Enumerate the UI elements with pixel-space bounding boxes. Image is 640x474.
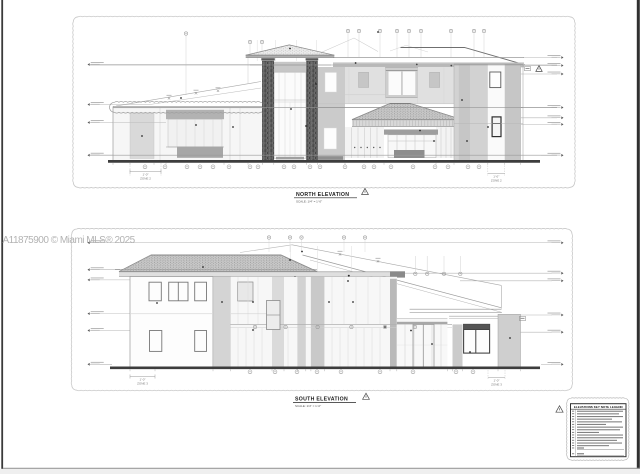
svg-text:ZONE 2: ZONE 2: [140, 176, 151, 180]
svg-text:ZONE 3: ZONE 3: [491, 382, 502, 386]
svg-text:ZONE 3: ZONE 3: [137, 381, 148, 385]
svg-text:ZONE 2: ZONE 2: [491, 178, 502, 182]
svg-text:NORTH ELEVATION: NORTH ELEVATION: [296, 192, 349, 198]
svg-text:SOUTH ELEVATION: SOUTH ELEVATION: [295, 397, 348, 403]
svg-text:SCALE: 1/4" = 1'-0": SCALE: 1/4" = 1'-0": [295, 404, 321, 408]
svg-text:A11875900 © Miami MLS® 2025: A11875900 © Miami MLS® 2025: [3, 235, 136, 246]
svg-text:ELEVATIONS KEY NOTE LEGEND: ELEVATIONS KEY NOTE LEGEND: [574, 405, 624, 409]
svg-text:SCALE: 1/4" = 1'-0": SCALE: 1/4" = 1'-0": [296, 200, 322, 204]
